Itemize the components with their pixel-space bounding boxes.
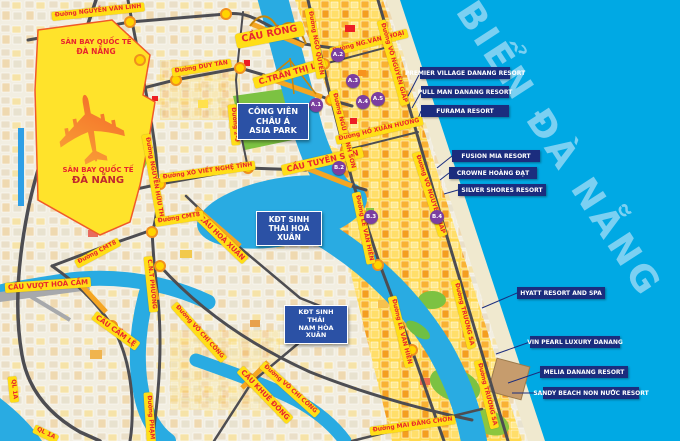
resort-label: FURAMA RESORT bbox=[421, 105, 509, 117]
airport-label-south: SÂN BAY QUỐC TẾ ĐÀ NẴNG bbox=[52, 166, 144, 187]
zone-marker: B.4 bbox=[430, 210, 444, 224]
asia-park-line1: CÔNG VIÊN bbox=[242, 107, 304, 117]
kdt-line: KĐT SINH THÁI bbox=[289, 309, 343, 325]
kdt-line: NAM HÒA XUÂN bbox=[289, 325, 343, 341]
zone-marker: A.5 bbox=[371, 92, 385, 106]
kdt-hoa-xuan-box: KĐT SINH THÁI HOÀ XUÂN bbox=[256, 211, 322, 246]
airport-name-line1: SÂN BAY QUỐC TẾ bbox=[52, 166, 144, 175]
map-canvas: ✈ BIỂN ĐÀ NẴNG SÂN BAY QUỐC TẾ ĐÀ NẴNG S… bbox=[0, 0, 680, 441]
resort-label: MELIA DANANG RESORT bbox=[540, 366, 628, 378]
airport-name-line2: ĐÀ NẴNG bbox=[48, 47, 144, 56]
zone-marker: A.3 bbox=[346, 74, 360, 88]
kdt-line: XUÂN bbox=[261, 233, 317, 242]
resort-label: FUSION MIA RESORT bbox=[452, 150, 540, 162]
resort-label: PULL MAN DANANG RESORT bbox=[421, 86, 509, 98]
resort-label: CROWNE HOÀNG ĐẠT bbox=[449, 167, 537, 179]
resort-label: HYATT RESORT AND SPA bbox=[517, 287, 605, 299]
zone-marker: B.2 bbox=[332, 161, 346, 175]
asia-park-line3: ASIA PARK bbox=[242, 126, 304, 136]
resort-label: PREMIER VILLAGE DANANG RESORT bbox=[420, 67, 510, 79]
airport-label-north: SÂN BAY QUỐC TẾ ĐÀ NẴNG bbox=[48, 38, 144, 56]
asia-park-line2: CHÂU Á bbox=[242, 117, 304, 127]
airport-name-line2: ĐÀ NẴNG bbox=[52, 175, 144, 188]
asia-park-box: CÔNG VIÊN CHÂU Á ASIA PARK bbox=[237, 103, 309, 140]
resort-label: SANDY BEACH NON NƯỚC RESORT bbox=[543, 387, 639, 399]
resort-label: SILVER SHORES RESORT bbox=[458, 184, 546, 196]
zone-marker: A.2 bbox=[331, 48, 345, 62]
kdt-line: KĐT SINH bbox=[261, 215, 317, 224]
kdt-line: THÁI HOÀ bbox=[261, 224, 317, 233]
zone-marker: A.1 bbox=[309, 98, 323, 112]
airport-name-line1: SÂN BAY QUỐC TẾ bbox=[48, 38, 144, 47]
zone-marker: A.4 bbox=[356, 95, 370, 109]
resort-label: VIN PEARL LUXURY DANANG bbox=[530, 336, 620, 348]
zone-marker: B.3 bbox=[364, 210, 378, 224]
kdt-nam-hoa-xuan-box: KĐT SINH THÁI NAM HÒA XUÂN bbox=[284, 305, 348, 344]
